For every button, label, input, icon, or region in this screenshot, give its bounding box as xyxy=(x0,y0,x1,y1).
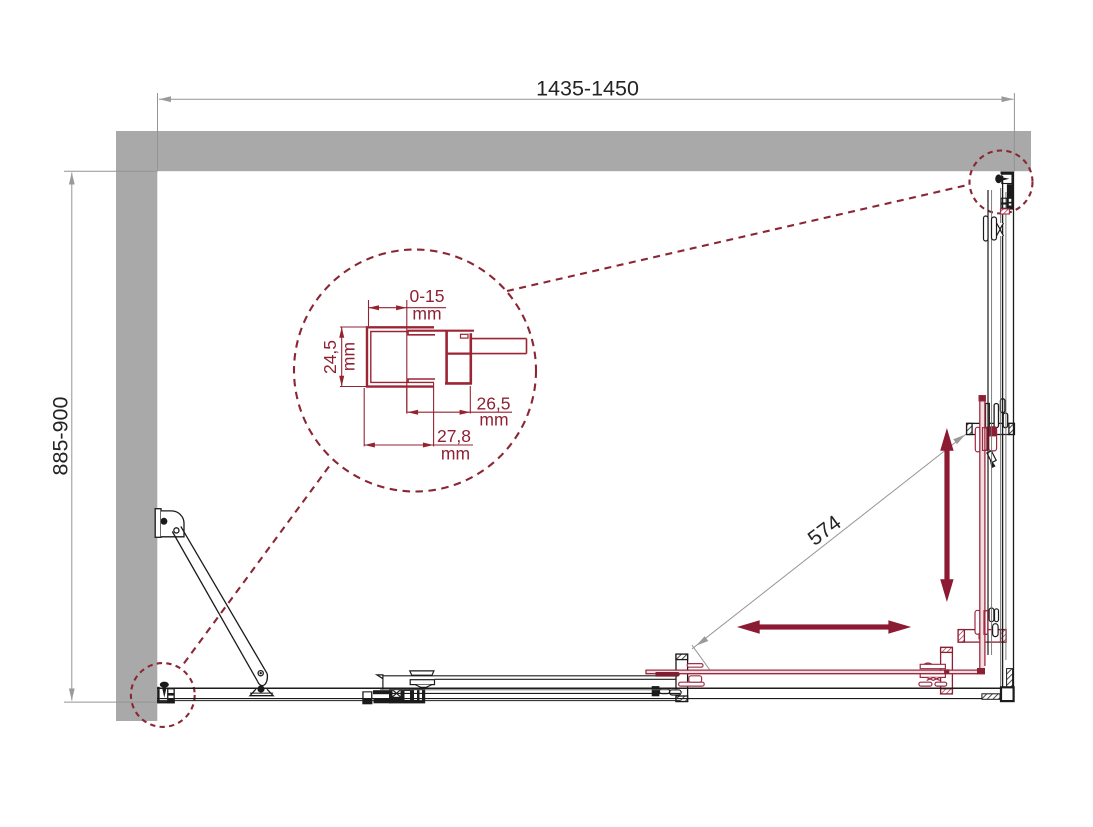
svg-text:885-900: 885-900 xyxy=(48,397,72,476)
svg-text:24,5: 24,5 xyxy=(320,340,340,374)
svg-text:mm: mm xyxy=(412,304,441,324)
svg-text:mm: mm xyxy=(339,342,359,371)
svg-text:mm: mm xyxy=(479,410,508,430)
svg-text:mm: mm xyxy=(441,444,470,464)
svg-text:1435-1450: 1435-1450 xyxy=(536,77,639,101)
